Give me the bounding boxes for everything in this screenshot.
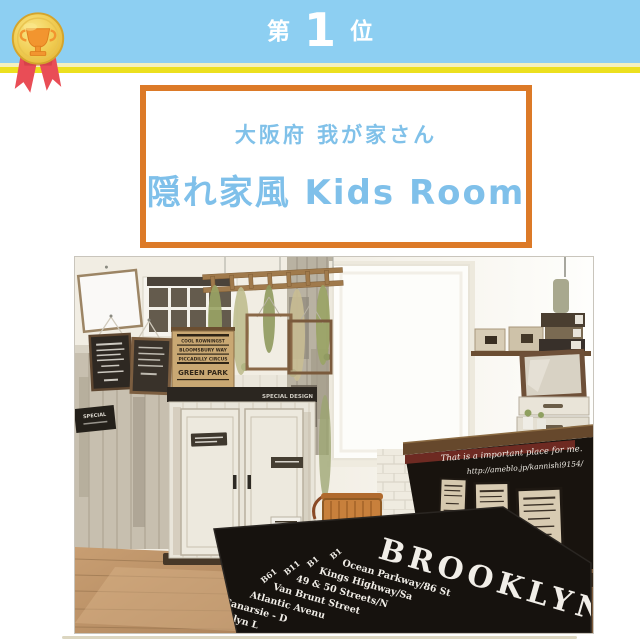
rank-number: 1 (304, 7, 336, 53)
banner-underline-yellow (0, 67, 640, 73)
room-photo-illustration: COOL ROWNINGST BLOOMSBURY WAY PICCADILLY… (75, 257, 593, 633)
svg-text:PICCADILLY CIRCUS: PICCADILLY CIRCUS (179, 357, 228, 363)
winner-name: 大阪府 我が家さん (235, 119, 437, 149)
large-window (327, 261, 477, 467)
room-photo: COOL ROWNINGST BLOOMSBURY WAY PICCADILLY… (74, 256, 594, 634)
gold-trophy-medal-icon (7, 7, 69, 99)
next-section-edge (62, 636, 577, 639)
rank-prefix: 第 (267, 21, 290, 44)
wall-plaque: SPECIAL (75, 405, 116, 433)
winner-card: 大阪府 我が家さん 隠れ家風 Kids Room (140, 85, 532, 248)
busroll-sign: COOL ROWNINGST BLOOMSBURY WAY PICCADILLY… (171, 327, 235, 393)
svg-text:BLOOMSBURY WAY: BLOOMSBURY WAY (179, 348, 227, 354)
svg-text:GREEN PARK: GREEN PARK (178, 369, 228, 377)
svg-text:COOL ROWNINGST: COOL ROWNINGST (181, 339, 225, 344)
rank-suffix: 位 (350, 21, 373, 44)
svg-text:SPECIAL DESIGN: SPECIAL DESIGN (262, 394, 313, 400)
rank-title: 第 1 位 (0, 0, 640, 64)
room-title: 隠れ家風 Kids Room (147, 165, 526, 214)
